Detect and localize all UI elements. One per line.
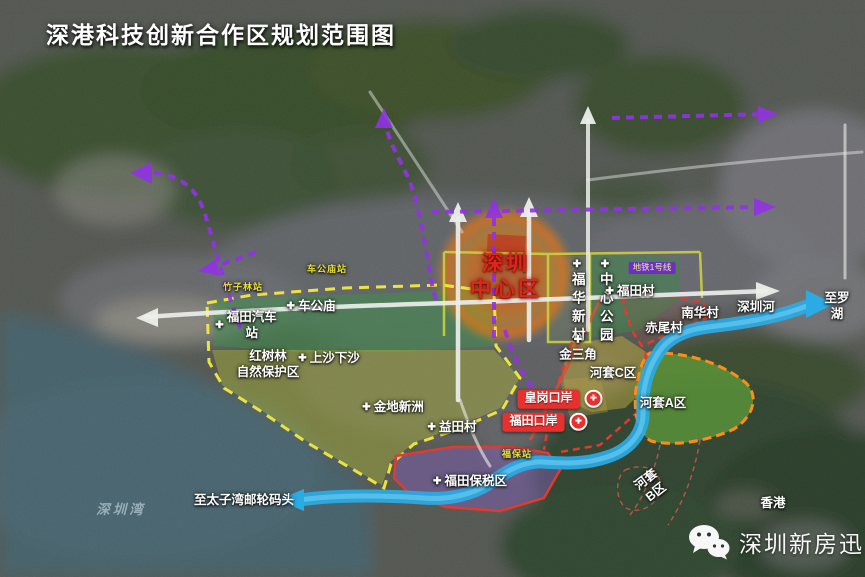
- map-label-text: 竹子林站: [223, 282, 263, 294]
- satellite-basemap-svg: [0, 0, 865, 577]
- map-label-chegongmiao: ✚车公庙: [287, 298, 336, 314]
- cross-marker-icon: ✚: [433, 475, 441, 488]
- cross-marker-icon: ✚: [606, 285, 614, 298]
- map-label-text: 福田汽车 站: [227, 309, 277, 342]
- map-label-shenzhen-he: 深圳河: [737, 299, 775, 315]
- cross-marker-icon: ✚: [287, 300, 295, 313]
- map-label-fuhua-xincun: ✚福华新村: [568, 258, 586, 346]
- map-label-futian-cun: ✚福田村: [606, 283, 655, 299]
- map-label-hetao-c: 河套C区: [590, 365, 637, 381]
- map-label-shangsha-xiasha: ✚上沙下沙: [298, 350, 359, 366]
- metro-lines: [130, 106, 778, 398]
- map-canvas: 深港科技创新合作区规划范围图 深圳 中心区✚福华新村✚中心公园✚福田村✚金三角南…: [0, 0, 865, 577]
- cross-marker-icon: ✚: [601, 258, 609, 271]
- map-label-hongshulin: 红树林 自然保护区: [237, 348, 300, 381]
- map-label-text: 福田村: [617, 283, 655, 299]
- map-label-nanhua-cun: 南华村: [681, 305, 719, 321]
- map-label-jinsanjiao: ✚金三角: [559, 333, 597, 362]
- map-label-text: 河套C区: [590, 365, 637, 381]
- map-label-text: 金三角: [559, 346, 597, 362]
- map-label-yitian-cun: ✚益田村: [428, 419, 477, 435]
- map-label-text: 赤尾村: [645, 320, 683, 336]
- map-label-text: 中心公园: [596, 272, 614, 346]
- watermark-text: 深圳新房迅: [739, 525, 864, 559]
- labels-layer: 深圳 中心区✚福华新村✚中心公园✚福田村✚金三角南华村赤尾村深圳河至罗湖河套C区…: [0, 0, 865, 577]
- cross-marker-icon: ✚: [573, 258, 581, 271]
- map-label-hetao-a: 河套A区: [640, 395, 687, 411]
- map-label-text: 河套 B区: [631, 465, 671, 506]
- map-label-text: 车公庙: [298, 298, 336, 314]
- map-label-text: 至太子湾邮轮码头: [194, 492, 294, 508]
- map-label-text: 地铁1号线: [629, 262, 676, 274]
- road-arrows: [136, 92, 862, 466]
- map-title: 深港科技创新合作区规划范围图: [46, 16, 396, 50]
- map-label-text: 车公庙站: [307, 264, 347, 276]
- map-label-text: 皇岗口岸: [517, 390, 579, 409]
- map-label-zhuzilin-station: 竹子林站: [223, 282, 263, 294]
- noise-texture: [0, 0, 865, 577]
- boundary-lines: [207, 252, 753, 525]
- map-label-text: 河套A区: [640, 395, 687, 411]
- map-label-futian-qichezhan: ✚福田汽车 站: [215, 309, 276, 342]
- map-label-text: 福保站: [502, 449, 532, 461]
- map-label-hetao-b: 河套 B区: [631, 465, 671, 506]
- cross-marker-icon: ✚: [362, 401, 370, 414]
- terrain-layer: [0, 0, 865, 577]
- map-label-huanggang-port: 皇岗口岸✚: [517, 390, 602, 409]
- river-shenzhen: [278, 290, 834, 511]
- map-label-zhi-luohu: 至罗湖: [823, 290, 851, 323]
- cross-marker-icon: ✚: [215, 319, 223, 332]
- map-label-shenzhen-wan: 深圳湾: [96, 501, 146, 519]
- cross-marker-icon: ✚: [298, 352, 306, 365]
- map-label-chegongmiao-station: 车公庙站: [307, 264, 347, 276]
- map-label-text: 红树林 自然保护区: [237, 348, 300, 381]
- map-label-metro-line1-badge: 地铁1号线: [629, 262, 676, 274]
- map-label-text: 益田村: [439, 419, 477, 435]
- map-label-fubao-station: 福保站: [502, 449, 532, 461]
- wechat-icon: [688, 524, 730, 560]
- map-label-text: 深圳 中心区: [470, 251, 542, 304]
- center-glow: [433, 203, 577, 347]
- map-label-text: 福华新村: [568, 272, 586, 346]
- publisher-watermark: 深圳新房迅: [688, 524, 864, 560]
- port-cross-icon: ✚: [570, 413, 588, 431]
- map-label-text: 上沙下沙: [310, 350, 360, 366]
- zone-overlays: [212, 256, 753, 511]
- map-label-text: 香港: [760, 495, 785, 511]
- map-label-hongkong: 香港: [760, 495, 785, 511]
- cross-marker-icon: ✚: [428, 421, 436, 434]
- map-label-text: 南华村: [681, 305, 719, 321]
- cross-marker-icon: ✚: [574, 333, 582, 346]
- map-label-text: 深圳河: [737, 299, 775, 315]
- map-label-jindi-xinzhou: ✚金地新洲: [362, 399, 423, 415]
- map-label-shenzhen-center: 深圳 中心区: [470, 251, 542, 304]
- map-label-text: 金地新洲: [374, 399, 424, 415]
- map-label-text: 福田保税区: [444, 473, 507, 489]
- map-label-chiwei-cun: 赤尾村: [645, 320, 683, 336]
- port-cross-icon: ✚: [585, 390, 603, 408]
- map-label-text: 福田口岸: [502, 413, 564, 432]
- map-label-zhongxin-gongyuan: ✚中心公园: [596, 258, 614, 346]
- map-label-taiziwan: 至太子湾邮轮码头: [194, 492, 294, 508]
- map-label-futian-port: 福田口岸✚: [502, 413, 587, 432]
- map-label-futian-baoshui: ✚福田保税区: [433, 473, 507, 489]
- map-label-text: 至罗湖: [823, 290, 851, 323]
- map-label-text: 深圳湾: [96, 501, 146, 519]
